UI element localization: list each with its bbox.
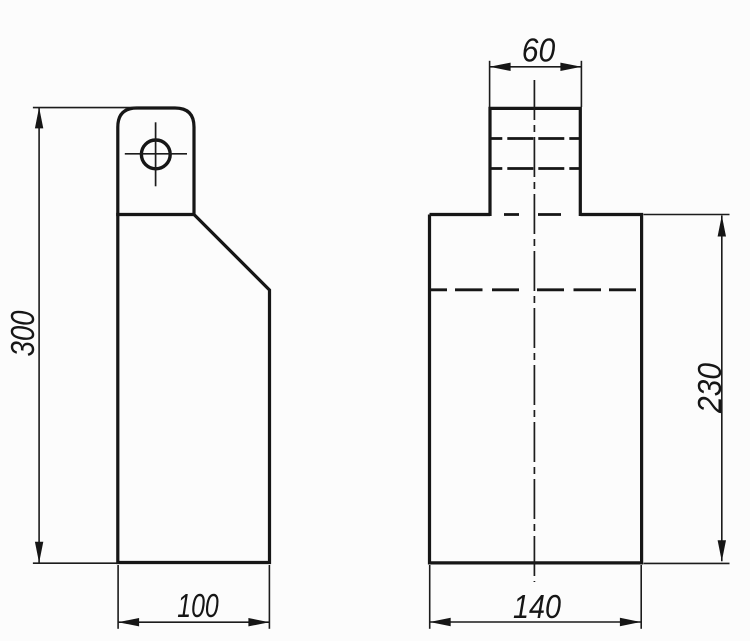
svg-text:100: 100 — [177, 587, 219, 624]
svg-text:60: 60 — [522, 32, 556, 69]
svg-text:230: 230 — [691, 362, 728, 413]
svg-text:300: 300 — [4, 310, 41, 357]
svg-text:140: 140 — [513, 588, 562, 625]
